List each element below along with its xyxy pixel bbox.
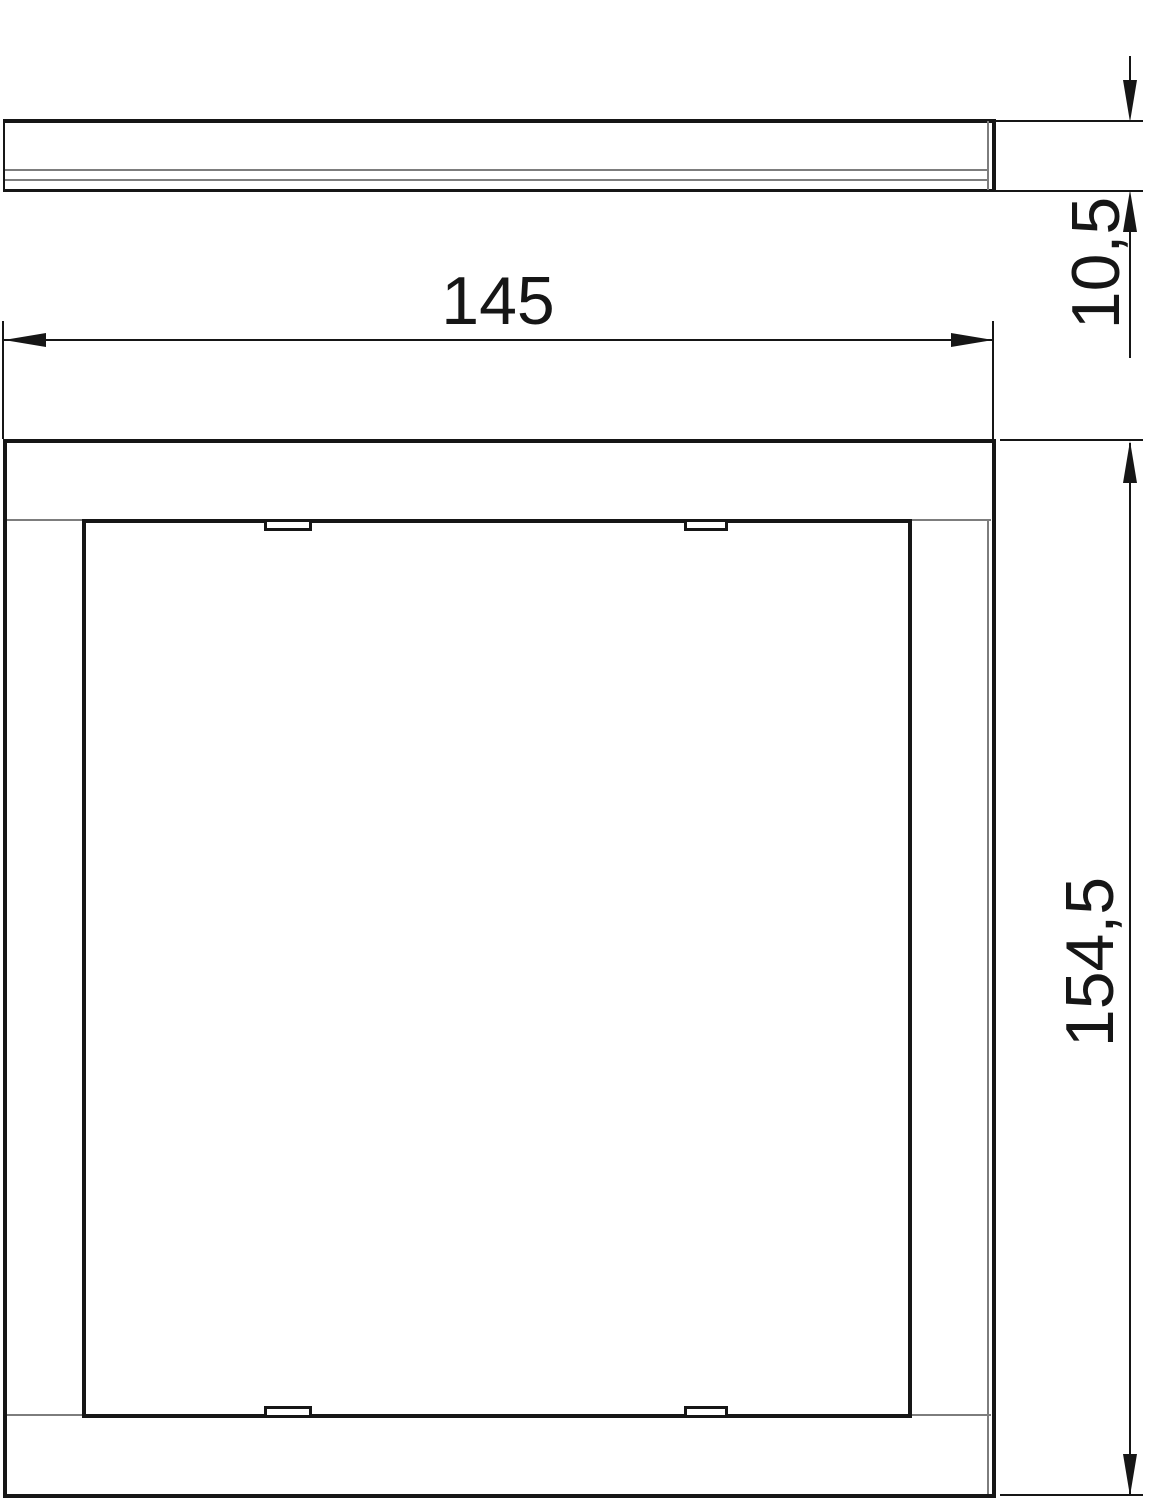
side-view-right-edge [992, 119, 996, 192]
clip-notch-bottom-right [684, 1406, 728, 1418]
width-dimension-line [4, 339, 993, 341]
side-view-groove-line-1 [5, 169, 988, 171]
side-view-groove-line-2 [5, 179, 988, 181]
arrow-up-icon [1123, 441, 1137, 483]
clip-notch-bottom-left [264, 1406, 312, 1418]
clip-notch-top-right [684, 519, 728, 531]
height-dimension-line [1129, 443, 1131, 1496]
arrow-down-icon [1123, 1454, 1137, 1496]
height-extension-line-top [1000, 439, 1143, 441]
arrow-left-icon [4, 333, 46, 347]
dimension-label-width: 145 [398, 266, 598, 336]
arrow-right-icon [951, 333, 993, 347]
height-extension-line-bottom [1000, 1494, 1143, 1496]
cover-plate-outline [82, 519, 912, 1418]
technical-drawing: 145 10,5 154,5 [0, 0, 1150, 1500]
side-view-bottom-edge [3, 189, 996, 192]
clip-notch-top-left [264, 519, 312, 531]
dimension-label-height: 154,5 [1055, 822, 1125, 1102]
thickness-extension-line-top [996, 120, 1143, 122]
side-view-top-edge [3, 119, 996, 123]
arrow-down-icon [1123, 80, 1137, 122]
side-view-left-edge [3, 119, 5, 192]
dimension-label-thickness: 10,5 [1061, 163, 1131, 363]
thickness-arrow-tail-top [1129, 56, 1131, 82]
